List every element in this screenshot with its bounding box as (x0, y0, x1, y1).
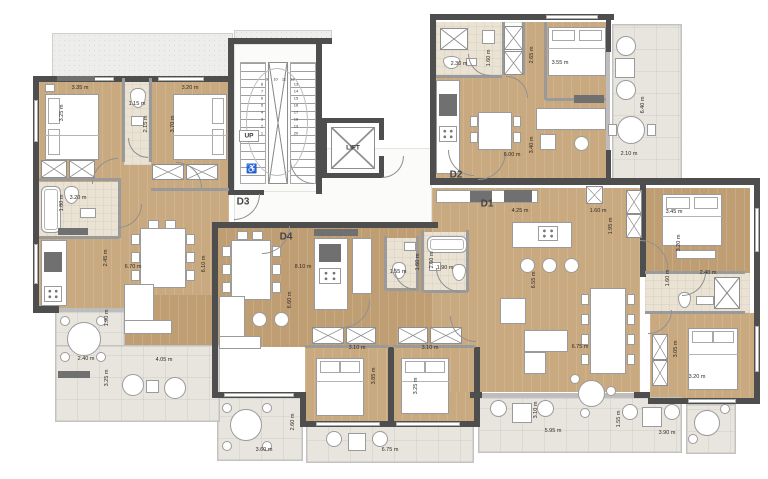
dining-table (140, 228, 186, 288)
sofa (219, 296, 245, 340)
wardrobe (626, 190, 642, 214)
dimension-label: 2.40 m (700, 270, 717, 276)
stove (439, 126, 457, 142)
kitchen-sink (319, 244, 341, 262)
dimension-label: 1.90 m (104, 310, 110, 327)
chair (148, 220, 159, 229)
sofa (536, 108, 606, 130)
chair (581, 294, 589, 305)
floor-plan: UP ♿ LIFT (0, 0, 768, 479)
window-glazing (59, 308, 125, 312)
dimension-label: 5.95 m (545, 428, 562, 434)
stair-step-number: 7 (261, 89, 263, 94)
wall (634, 392, 650, 398)
chair (608, 124, 617, 136)
side-table (540, 134, 556, 150)
stair-step-number: 5 (261, 103, 263, 108)
chair (186, 234, 195, 245)
chair (60, 316, 70, 326)
wardrobe (398, 327, 428, 344)
dimension-label: 8.10 m (295, 264, 312, 270)
dimension-label: 1.60 m (486, 50, 492, 67)
kitchen-counter (352, 238, 372, 294)
dimension-label: 1.80 m (59, 195, 65, 212)
dimension-label: 3.70 m (170, 116, 176, 133)
dimension-label: 2.10 m (621, 151, 638, 157)
apartment-label-d1: D1 (481, 199, 494, 210)
chair (627, 354, 635, 365)
dimension-label: 2.60 m (290, 414, 296, 431)
dimension-label: 2.65 m (529, 47, 535, 64)
partition (151, 188, 229, 191)
bench (676, 250, 716, 259)
terrace-top-left (52, 33, 233, 77)
dimension-label: 1.55 m (616, 411, 622, 428)
stair-step-number: 6 (261, 96, 263, 101)
lift-shaft-wall (322, 118, 327, 178)
round-table (230, 409, 262, 441)
partition (305, 345, 389, 348)
chair (581, 354, 589, 365)
dimension-label: 6.75 m (572, 344, 589, 350)
shower (714, 277, 740, 309)
wall (606, 150, 611, 180)
stool (564, 258, 579, 273)
side-table (615, 58, 635, 78)
wardrobe (346, 327, 376, 344)
stair-step-number: 17 (294, 110, 298, 115)
chair (186, 270, 195, 281)
side-table (348, 433, 366, 451)
stair-step-number: 19 (294, 124, 298, 129)
side-table (500, 298, 526, 324)
wall (212, 222, 438, 228)
chair (131, 270, 140, 281)
stair-step-number: 20 (294, 131, 298, 136)
stair-step-number: 14 (294, 89, 298, 94)
chair (272, 282, 281, 293)
dimension-label: 2.30 m (451, 61, 468, 67)
chair (627, 314, 635, 325)
kitchen-sink (44, 252, 62, 272)
apartment-label-d3: D3 (237, 197, 250, 208)
dimension-label: 6.10 m (201, 256, 207, 273)
stool (252, 312, 267, 327)
lift-label: LIFT (346, 145, 360, 152)
dimension-label: 2.40 m (78, 356, 95, 362)
dimension-label: 3.05 m (673, 341, 679, 358)
window (158, 77, 204, 81)
bed (662, 194, 722, 246)
round-table (67, 322, 101, 356)
partition (544, 22, 547, 100)
chair (165, 220, 176, 229)
washer (482, 30, 495, 44)
stair-step-number: 4 (261, 110, 263, 115)
wall (212, 222, 218, 398)
partition (149, 78, 152, 162)
counter-top (504, 190, 532, 202)
wall (388, 347, 394, 423)
night-stand (45, 84, 55, 92)
chair (262, 403, 272, 413)
armchair (490, 400, 507, 417)
wardrobe (312, 327, 344, 344)
window (396, 422, 460, 426)
chair (688, 434, 698, 444)
stair-step-number: 18 (294, 117, 298, 122)
dimension-label: 1.60 m (590, 208, 607, 214)
stair-step-number: 13 (294, 82, 298, 87)
bed (316, 358, 364, 416)
dimension-label: 3.55 m (552, 60, 569, 66)
stair-step-number: 8 (261, 82, 263, 87)
chair (513, 132, 521, 143)
tv-unit (574, 95, 604, 103)
chair (470, 116, 478, 127)
chair (647, 124, 656, 136)
stove (538, 226, 558, 241)
stove (319, 268, 341, 284)
apartment-label-d4: D4 (280, 232, 293, 243)
partition (436, 75, 502, 78)
wheelchair-icon: ♿ (246, 164, 257, 175)
sink (696, 296, 714, 305)
sofa (524, 330, 568, 352)
round-table (617, 116, 645, 144)
wardrobe (626, 214, 642, 238)
dimension-label: 3.60 m (256, 447, 273, 453)
armchair (122, 374, 144, 396)
wardrobe (652, 360, 668, 386)
round-table (578, 380, 605, 407)
lift-shaft-wall (379, 118, 384, 140)
window (546, 15, 598, 19)
partition (421, 230, 424, 292)
bench (58, 371, 90, 378)
stove (44, 286, 62, 302)
chair (720, 404, 730, 414)
chair (272, 264, 281, 275)
dimension-label: 3.90 m (659, 430, 676, 436)
armchair (164, 377, 186, 399)
chair (627, 294, 635, 305)
sink (80, 208, 96, 218)
side-table (642, 407, 662, 427)
partition (122, 78, 125, 162)
dimension-label: 2.60 m (429, 252, 435, 269)
dimension-label: 6.55 m (531, 272, 537, 289)
stair-step-number: 1 (261, 131, 263, 136)
stair-step-number: 15 (294, 96, 298, 101)
bed (548, 27, 606, 76)
window (34, 100, 38, 142)
chair (606, 386, 616, 396)
chair (96, 352, 106, 362)
side-table (512, 403, 532, 423)
sofa (124, 320, 172, 334)
stair-step-number: 10 (273, 77, 277, 82)
armchair (622, 404, 638, 420)
dimension-label: 3.10 m (422, 345, 439, 351)
window-glazing (482, 393, 640, 397)
stair-step-number: 11 (282, 77, 286, 82)
round-table (694, 410, 720, 436)
bathtub (41, 186, 61, 233)
sink (404, 242, 416, 251)
stool (542, 258, 557, 273)
dimension-label: 1.55 m (390, 269, 407, 275)
stair-step-number: 2 (261, 124, 263, 129)
stair-step-number: 3 (261, 117, 263, 122)
window (755, 208, 759, 252)
dimension-label: 1.95 m (608, 218, 614, 235)
shower (440, 28, 468, 50)
dining-table (478, 112, 512, 150)
chair (581, 314, 589, 325)
chair (627, 334, 635, 345)
window (688, 399, 736, 403)
chair (222, 441, 232, 451)
apartment-label-d2: D2 (450, 170, 463, 181)
dimension-label: 3.25 m (413, 378, 419, 395)
partition (424, 290, 468, 293)
wardrobe (586, 186, 603, 204)
dimension-label: 3.20 m (689, 374, 706, 380)
window (224, 393, 294, 397)
dimension-label: 6.00 m (504, 152, 521, 158)
chair (222, 264, 231, 275)
counter-top (58, 228, 88, 235)
up-label: UP (244, 133, 253, 140)
chair (580, 408, 590, 418)
window (755, 326, 759, 372)
bed (45, 94, 99, 160)
chair (60, 352, 70, 362)
dimension-label: 3.10 m (349, 345, 366, 351)
dimension-label: 3.35 m (72, 85, 89, 91)
dimension-label: 1.60 m (665, 270, 671, 287)
chair (131, 252, 140, 263)
bed (401, 358, 449, 414)
wardrobe (41, 160, 67, 178)
armchair (664, 404, 680, 420)
dimension-label: 6.70 m (125, 264, 142, 270)
chair (570, 374, 580, 384)
dimension-label: 3.85 m (371, 368, 377, 385)
sofa (524, 352, 546, 374)
dimension-label: 3.20 m (70, 195, 87, 201)
dimension-label: 3.40 m (529, 137, 535, 154)
armchair (372, 431, 388, 447)
chair (470, 132, 478, 143)
chair (237, 231, 248, 240)
dimension-label: 1.60 m (415, 254, 421, 271)
wardrobe (504, 51, 523, 75)
dimension-label: 1.15 m (129, 101, 146, 107)
dimension-label: 2.15 m (143, 116, 149, 133)
sofa (219, 336, 261, 349)
pouf (574, 136, 589, 151)
dimension-label: 4.25 m (512, 208, 529, 214)
partition (39, 236, 119, 239)
dimension-label: 1.90 m (437, 265, 454, 271)
wall (228, 38, 234, 194)
curtain-rail (57, 76, 95, 81)
dimension-label: 6.75 m (382, 447, 399, 453)
dimension-label: 3.45 m (666, 209, 683, 215)
dimension-label: 4.05 m (156, 357, 173, 363)
chair (513, 116, 521, 127)
chair (222, 403, 232, 413)
wall (33, 306, 59, 313)
armchair (326, 431, 342, 447)
stool (274, 312, 289, 327)
window (316, 422, 380, 426)
wall (474, 347, 480, 423)
chair (186, 252, 195, 263)
wall (470, 392, 482, 398)
dimension-label: 3.20 m (182, 85, 199, 91)
kitchen-sink (439, 94, 457, 116)
bed (173, 94, 227, 160)
armchair (537, 400, 554, 417)
stair-step-number: 9 (266, 77, 268, 82)
dimension-label: 6.60 m (287, 292, 293, 309)
dimension-label: 6.40 m (640, 97, 646, 114)
dimension-label: 3.25 m (59, 105, 65, 122)
dimension-label: 3.25 m (104, 370, 110, 387)
dining-table (590, 288, 626, 374)
stair-step-number: 16 (294, 103, 298, 108)
wardrobe (504, 26, 523, 50)
window (34, 244, 38, 284)
lift-shaft-wall (322, 173, 384, 178)
dimension-label: 2.45 m (103, 250, 109, 267)
dimension-label: 3.20 m (676, 235, 682, 252)
wardrobe (652, 334, 668, 360)
armchair (616, 36, 636, 56)
dimension-label: 3.10 m (533, 402, 539, 419)
counter-top (314, 229, 358, 236)
wall (606, 20, 611, 52)
wardrobe (69, 160, 95, 178)
bed (688, 328, 738, 390)
lift-shaft-wall (322, 118, 384, 123)
chair (131, 234, 140, 245)
armchair (616, 80, 636, 100)
chair (222, 246, 231, 257)
side-table (146, 380, 159, 393)
partition (384, 236, 387, 290)
chair (222, 282, 231, 293)
